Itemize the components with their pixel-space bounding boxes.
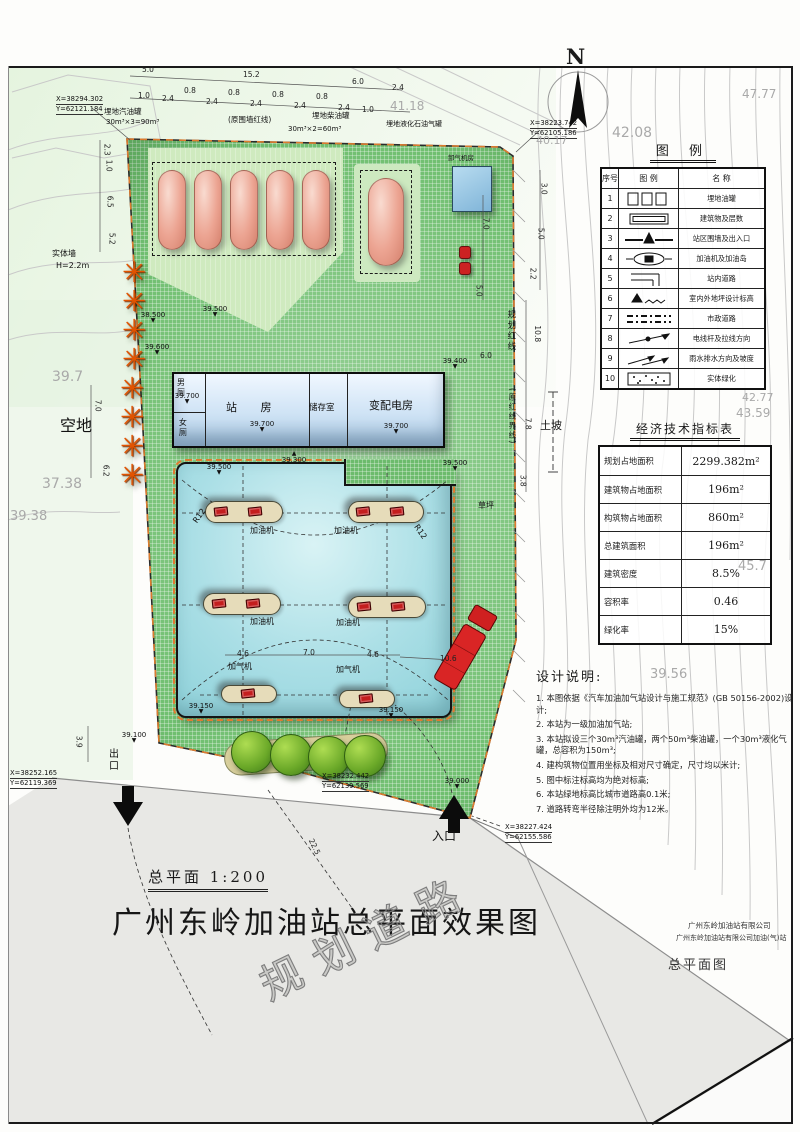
dimension-label: 2.4 bbox=[250, 100, 262, 108]
dimension-label: 6.0 bbox=[352, 78, 364, 86]
indicator-label: 总建筑面积 bbox=[600, 532, 682, 559]
dimension-label: 0.8 bbox=[228, 89, 240, 97]
design-note: 3. 本站拟设三个30m³汽油罐，两个50m³柴油罐，一个30m³液化气罐，总容… bbox=[536, 734, 794, 757]
design-note: 5. 图中标注标高均为绝对标高; bbox=[536, 775, 794, 787]
plan-label: 加气机 bbox=[228, 663, 252, 671]
plan-label: 加油机 bbox=[250, 618, 274, 626]
building-icon bbox=[619, 209, 679, 228]
legend-row-no: 9 bbox=[602, 349, 619, 368]
legend-row: 5站内道路 bbox=[602, 268, 764, 288]
room-label-station-house: 站 房 bbox=[226, 402, 282, 414]
dispenser bbox=[240, 688, 255, 698]
plan-label: 草坪 bbox=[478, 502, 494, 510]
coordinate-label: X=38252.165Y=62119.369 bbox=[10, 769, 57, 789]
frame-left bbox=[8, 66, 9, 1124]
indicator-row: 规划占地面积2299.382m² bbox=[600, 447, 770, 475]
coordinate-label: X=38232.442Y=62139.569 bbox=[322, 772, 369, 792]
dimension-label: 5.2 bbox=[108, 233, 116, 245]
elevation-triangle-icon: ▼ bbox=[377, 429, 415, 435]
plan-label: 实体墙 bbox=[52, 250, 76, 258]
fueling-island bbox=[203, 593, 281, 615]
contour-elevation-label: 37.38 bbox=[42, 477, 82, 491]
dispenser bbox=[356, 506, 371, 516]
dispenser bbox=[390, 601, 405, 611]
elevation-triangle-icon: ▼ bbox=[438, 784, 476, 790]
elevation-triangle-icon: ▼ bbox=[436, 466, 474, 472]
dispenser bbox=[245, 598, 260, 608]
design-note: 4. 建构筑物位置用坐标及相对尺寸确定，尺寸均以米计; bbox=[536, 760, 794, 772]
contour-elevation-label: 40.17 bbox=[536, 135, 568, 146]
sheet-name: 总平面图 bbox=[668, 954, 728, 973]
plan-label: 加气机 bbox=[336, 666, 360, 674]
room-label-transformer: 变配电房 bbox=[369, 400, 413, 412]
dispenser bbox=[389, 506, 404, 516]
elevation-marker: 39.700▼ bbox=[168, 393, 206, 405]
elevation-marker: 39.500▼ bbox=[200, 464, 238, 476]
design-note: 1. 本图依据《汽车加油加气站设计与施工规范》(GB 50156-2002)设计… bbox=[536, 693, 794, 716]
elevation-marker: 39.500▼ bbox=[436, 460, 474, 472]
contour-elevation-label: 39.56 bbox=[650, 668, 687, 681]
indicators-panel: 经济技术指标表 规划占地面积2299.382m²建筑物占地面积196m²构筑物占… bbox=[598, 418, 772, 645]
dimension-label: 0.8 bbox=[184, 87, 196, 95]
legend-row-name: 站内道路 bbox=[679, 269, 764, 288]
exit-arrow bbox=[113, 786, 143, 826]
elevation-marker: 39.600▼ bbox=[138, 344, 176, 356]
dimension-label: 5.0 bbox=[475, 285, 483, 297]
design-notes: 设计说明: 1. 本图依据《汽车加油加气站设计与施工规范》(GB 50156-2… bbox=[536, 666, 794, 818]
plan-label: 埋地柴油罐 bbox=[312, 112, 350, 120]
legend-row-no: 1 bbox=[602, 189, 619, 208]
elevation-triangle-icon: ▼ bbox=[372, 713, 410, 719]
plan-label: 卸气机房 bbox=[448, 155, 474, 162]
flower-icon: ✳ bbox=[120, 432, 144, 461]
plan-label: 加油机 bbox=[250, 527, 274, 535]
elevation-marker: 39.150▼ bbox=[182, 703, 220, 715]
legend-row: 10实体绿化 bbox=[602, 368, 764, 388]
plan-label: 埋地液化石油气罐 bbox=[386, 121, 442, 128]
elevation-triangle-icon: ▼ bbox=[134, 318, 172, 324]
legend-row: 3站区围墙及出入口 bbox=[602, 228, 764, 248]
plan-scale-label: 总平面 1:200 bbox=[148, 866, 268, 892]
indicator-value: 0.46 bbox=[682, 588, 770, 615]
fueling-island bbox=[348, 501, 424, 523]
elevation-triangle-icon: ▼ bbox=[200, 470, 238, 476]
flower-icon: ✳ bbox=[120, 403, 144, 432]
elevation-marker: 39.100▼ bbox=[115, 732, 153, 744]
indicators-table: 规划占地面积2299.382m²建筑物占地面积196m²构筑物占地面积860m²… bbox=[598, 445, 772, 645]
indicator-value: 196m² bbox=[682, 476, 770, 503]
legend-row-name: 室内外地坪设计标高 bbox=[679, 289, 764, 308]
company-name-2: 广州东岭加油站有限公司加油(气)站 bbox=[676, 933, 786, 943]
indicator-row: 绿化率15% bbox=[600, 615, 770, 643]
indicator-value: 860m² bbox=[682, 504, 770, 531]
legend-title: 图 例 bbox=[650, 140, 716, 163]
indicator-row: 构筑物占地面积860m² bbox=[600, 503, 770, 531]
indicator-label: 建筑密度 bbox=[600, 560, 682, 587]
elevation-triangle-icon: ▼ bbox=[196, 312, 234, 318]
elevation-marker: ▲39.300 bbox=[275, 452, 313, 464]
legend-panel: 图 例 序号 图 例 名 称 1埋地油罐2建筑物及层数3站区围墙及出入口4加油机… bbox=[600, 140, 766, 390]
dimension-label: 3.0 bbox=[540, 183, 548, 195]
legend-header-no: 序号 bbox=[602, 169, 619, 188]
dimension-label: 7.8 bbox=[524, 418, 532, 430]
legend-row: 7市政道路 bbox=[602, 308, 764, 328]
legend-row-no: 8 bbox=[602, 329, 619, 348]
contour-elevation-label: 47.77 bbox=[742, 88, 776, 100]
dispenser bbox=[356, 601, 371, 611]
tanks-icon bbox=[619, 189, 679, 208]
frame-bottom bbox=[8, 1122, 792, 1124]
coordinate-label: X=38294.302Y=62121.184 bbox=[56, 95, 103, 115]
elevation-triangle-icon: ▼ bbox=[436, 364, 474, 370]
legend-row: 4加油机及加油岛 bbox=[602, 248, 764, 268]
dimension-label: 0.8 bbox=[272, 91, 284, 99]
dimension-label: 3.9 bbox=[75, 736, 83, 748]
dimension-label: 4.6 bbox=[237, 650, 249, 658]
dimension-label: 2.3 bbox=[103, 144, 111, 156]
elevation-triangle-icon: ▼ bbox=[115, 738, 153, 744]
dispenser bbox=[213, 506, 228, 516]
plan-label: 30m³×3=90m³ bbox=[106, 119, 159, 126]
legend-row-name: 埋地油罐 bbox=[679, 189, 764, 208]
dispenser bbox=[247, 506, 262, 516]
indicator-value: 15% bbox=[682, 616, 770, 643]
legend-header: 序号 图 例 名 称 bbox=[602, 169, 764, 188]
dimension-label: 5.0 bbox=[142, 66, 154, 74]
legend-table: 序号 图 例 名 称 1埋地油罐2建筑物及层数3站区围墙及出入口4加油机及加油岛… bbox=[600, 167, 766, 390]
dimension-label: 2.4 bbox=[392, 84, 404, 92]
dispenser-icon bbox=[619, 249, 679, 268]
elevation-triangle-icon: ▼ bbox=[182, 709, 220, 715]
dispenser bbox=[358, 693, 373, 703]
elevation-marker: 39.150▼ bbox=[372, 707, 410, 719]
pole-icon bbox=[619, 329, 679, 348]
contour-elevation-label: 39.7 bbox=[52, 370, 83, 384]
indicator-row: 总建筑面积196m² bbox=[600, 531, 770, 559]
elevation-marker: 39.500▼ bbox=[196, 306, 234, 318]
tree bbox=[270, 734, 312, 776]
dimension-label: 6.0 bbox=[480, 352, 492, 360]
dimension-label: 1.0 bbox=[105, 160, 113, 172]
legend-row-no: 4 bbox=[602, 249, 619, 268]
site-plan-drawing: ✳✳✳✳✳✳✳✳ 男厕 女厕 站 房 储存室 变配电房 N 图 例 序号 图 例… bbox=[0, 0, 800, 1132]
dimension-label: 0.8 bbox=[316, 93, 328, 101]
fueling-island bbox=[205, 501, 283, 523]
elevation-triangle-icon: ▼ bbox=[138, 350, 176, 356]
legend-header-symbol: 图 例 bbox=[619, 169, 679, 188]
plan-label: 出口 bbox=[106, 748, 117, 772]
plan-label: 加油机 bbox=[334, 527, 358, 535]
legend-row: 6室内外地坪设计标高 bbox=[602, 288, 764, 308]
dimension-label: 1.0 bbox=[362, 106, 374, 114]
plan-label: 入口 bbox=[432, 830, 456, 843]
elevation-marker: 39.000▼ bbox=[438, 778, 476, 790]
dimension-label: 2.2 bbox=[529, 268, 537, 280]
legend-row-name: 电线杆及拉线方向 bbox=[679, 329, 764, 348]
contour-elevation-label: 42.77 bbox=[742, 392, 774, 403]
plan-label: (原红线界线) bbox=[508, 388, 516, 445]
legend-row: 8电线杆及拉线方向 bbox=[602, 328, 764, 348]
dispenser bbox=[211, 598, 226, 608]
dimension-label: 7.0 bbox=[303, 649, 315, 657]
design-note: 7. 道路转弯半径除注明外均为12米。 bbox=[536, 804, 794, 816]
legend-row-no: 5 bbox=[602, 269, 619, 288]
contour-elevation-label: 39.38 bbox=[10, 510, 47, 523]
room-label-storage: 储存室 bbox=[309, 404, 335, 413]
legend-row-no: 7 bbox=[602, 309, 619, 328]
tree bbox=[231, 731, 273, 773]
elevation-marker: 38.500▼ bbox=[134, 312, 172, 324]
dimension-label: 2.4 bbox=[294, 102, 306, 110]
legend-row-name: 加油机及加油岛 bbox=[679, 249, 764, 268]
indicator-label: 容积率 bbox=[600, 588, 682, 615]
dimension-label: 7.0 bbox=[482, 218, 490, 230]
plan-label: 土坡 bbox=[540, 420, 562, 432]
dimension-label: 15.2 bbox=[243, 71, 260, 79]
indicator-label: 绿化率 bbox=[600, 616, 682, 643]
dimension-label: 10.8 bbox=[534, 325, 542, 342]
legend-row-no: 2 bbox=[602, 209, 619, 228]
dimension-label: 7.0 bbox=[94, 400, 102, 412]
station-road-icon bbox=[619, 269, 679, 288]
indicator-row: 容积率0.46 bbox=[600, 587, 770, 615]
legend-row-no: 3 bbox=[602, 229, 619, 248]
elevation-marker: 39.700▼ bbox=[377, 423, 415, 435]
legend-row: 2建筑物及层数 bbox=[602, 208, 764, 228]
drainage-icon bbox=[619, 349, 679, 368]
legend-row-name: 雨水排水方向及坡度 bbox=[679, 349, 764, 368]
legend-header-name: 名 称 bbox=[679, 169, 764, 188]
flower-icon: ✳ bbox=[122, 258, 146, 287]
greening-icon bbox=[619, 369, 679, 388]
fueling-island bbox=[221, 685, 277, 703]
design-note: 2. 本站为一级加油加气站; bbox=[536, 719, 794, 731]
company-name: 广州东岭加油站有限公司 bbox=[688, 920, 771, 931]
dimension-label: 5.0 bbox=[537, 228, 545, 240]
dimension-label: 2.4 bbox=[206, 98, 218, 106]
fueling-island bbox=[348, 596, 426, 618]
plan-label: 埋地汽油罐 bbox=[104, 108, 142, 116]
room-label-female-wc: 女厕 bbox=[178, 418, 186, 438]
indicator-row: 建筑物占地面积196m² bbox=[600, 475, 770, 503]
elevation-triangle-icon: ▼ bbox=[243, 427, 281, 433]
frame-right bbox=[791, 66, 793, 1124]
dimension-label: 6.5 bbox=[106, 196, 114, 208]
plan-label: 规划红线 bbox=[506, 310, 515, 352]
contour-elevation-label: 43.59 bbox=[736, 407, 770, 419]
legend-row-no: 10 bbox=[602, 369, 619, 388]
legend-row-no: 6 bbox=[602, 289, 619, 308]
plan-label: H=2.2m bbox=[56, 262, 89, 270]
elevation-marker: 39.400▼ bbox=[436, 358, 474, 370]
elevation-icon bbox=[619, 289, 679, 308]
dimension-label: 1.0 bbox=[138, 92, 150, 100]
legend-row-name: 市政道路 bbox=[679, 309, 764, 328]
dimension-label: 4.6 bbox=[367, 651, 379, 659]
indicator-label: 建筑物占地面积 bbox=[600, 476, 682, 503]
dimension-label: 2.4 bbox=[338, 104, 350, 112]
dimension-label: 6.2 bbox=[102, 465, 110, 477]
flower-icon: ✳ bbox=[120, 461, 144, 490]
indicator-value: 2299.382m² bbox=[682, 447, 770, 475]
legend-row-name: 实体绿化 bbox=[679, 369, 764, 388]
indicator-label: 构筑物占地面积 bbox=[600, 504, 682, 531]
coordinate-label: X=38227.424Y=62155.586 bbox=[505, 823, 552, 843]
contour-elevation-label: 45.7 bbox=[738, 560, 767, 573]
tree bbox=[344, 735, 386, 777]
dimension-label: 3.8 bbox=[519, 475, 527, 487]
design-note: 6. 本站绿地标高比城市道路高0.1米; bbox=[536, 789, 794, 801]
elevation-marker: 39.700▼ bbox=[243, 421, 281, 433]
plan-label: (原围墙红线) bbox=[228, 116, 271, 124]
plan-label: 30m³×2=60m³ bbox=[288, 126, 341, 133]
dimension-label: 2.4 bbox=[162, 95, 174, 103]
frame-top bbox=[8, 66, 792, 68]
legend-row: 1埋地油罐 bbox=[602, 188, 764, 208]
design-notes-list: 1. 本图依据《汽车加油加气站设计与施工规范》(GB 50156-2002)设计… bbox=[536, 693, 794, 815]
legend-row-name: 建筑物及层数 bbox=[679, 209, 764, 228]
plan-label: 空地 bbox=[60, 418, 92, 435]
contour-elevation-label: 41.18 bbox=[390, 100, 424, 112]
plan-label: 加油机 bbox=[336, 619, 360, 627]
flower-icon: ✳ bbox=[120, 374, 144, 403]
wall-gate-icon bbox=[619, 229, 679, 248]
indicators-title: 经济技术指标表 bbox=[630, 420, 740, 441]
elevation-triangle-icon: ▼ bbox=[168, 399, 206, 405]
indicator-label: 规划占地面积 bbox=[600, 447, 682, 475]
municipal-road-icon bbox=[619, 309, 679, 328]
dimension-label: 10.6 bbox=[440, 655, 457, 663]
entrance-arrow bbox=[439, 795, 469, 833]
contour-elevation-label: 42.08 bbox=[612, 126, 652, 140]
indicator-value: 196m² bbox=[682, 532, 770, 559]
legend-row: 9雨水排水方向及坡度 bbox=[602, 348, 764, 368]
legend-row-name: 站区围墙及出入口 bbox=[679, 229, 764, 248]
